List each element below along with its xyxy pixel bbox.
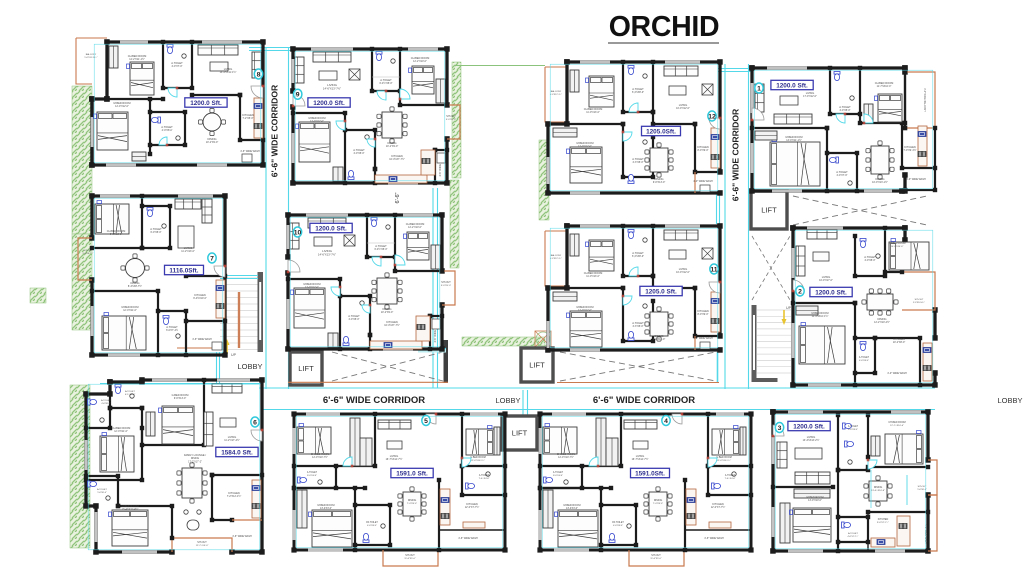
- svg-text:6'-6" WIDE CORRIDOR: 6'-6" WIDE CORRIDOR: [593, 395, 695, 406]
- svg-text:1200.0 Sft.: 1200.0 Sft.: [315, 225, 347, 232]
- svg-text:4'-0"X8'-0": 4'-0"X8'-0": [864, 259, 875, 262]
- svg-text:13'-4½X13'-2½": 13'-4½X13'-2½": [803, 438, 820, 442]
- svg-text:5'-0"X5'-0": 5'-0"X5'-0": [441, 285, 451, 287]
- svg-text:10'-0"X13'-1½": 10'-0"X13'-1½": [872, 180, 888, 184]
- svg-text:DINING: DINING: [874, 486, 883, 489]
- svg-text:A.TOILET: A.TOILET: [848, 532, 858, 535]
- svg-text:11'-6"X5'-0": 11'-6"X5'-0": [650, 558, 661, 560]
- svg-text:10'-0"X10'-0": 10'-0"X10'-0": [891, 246, 904, 248]
- svg-text:10'-0"X12'-0": 10'-0"X12'-0": [676, 107, 690, 110]
- svg-text:LIFT: LIFT: [298, 364, 314, 373]
- svg-text:6'-4½"X8'-0": 6'-4½"X8'-0": [374, 247, 387, 251]
- svg-text:6',4½X8'-0": 6',4½X8'-0": [632, 254, 644, 258]
- svg-text:12'-0"X12'-0": 12'-0"X12'-0": [578, 145, 592, 148]
- svg-text:PA.TOILET: PA.TOILET: [612, 521, 624, 524]
- svg-text:12'-0"X12'-0": 12'-0"X12'-0": [305, 286, 319, 289]
- svg-text:5'-0"X6'-0": 5'-0"X6'-0": [917, 489, 927, 491]
- svg-text:4'-0" WIDE BALCONY: 4'-0" WIDE BALCONY: [923, 88, 926, 112]
- svg-text:12'-0"X11'-0": 12'-0"X11'-0": [123, 309, 137, 312]
- svg-text:1205.0 Sft.: 1205.0 Sft.: [645, 288, 677, 295]
- svg-text:6'-6" WIDE CORRIDOR: 6'-6" WIDE CORRIDOR: [323, 395, 425, 406]
- svg-text:1116.0Sft.: 1116.0Sft.: [169, 267, 198, 274]
- svg-text:8'-0"X9'-0": 8'-0"X9'-0": [697, 149, 708, 152]
- svg-text:12: 12: [708, 114, 716, 121]
- svg-text:7'-0"X9'-1½": 7'-0"X9'-1½": [903, 148, 916, 152]
- svg-text:12'-2"X10'-0": 12'-2"X10'-0": [413, 60, 427, 63]
- svg-text:7'-2"X8'-0": 7'-2"X8'-0": [242, 117, 253, 120]
- svg-text:4'-6" WIDE WASH: 4'-6" WIDE WASH: [192, 338, 212, 341]
- svg-text:CH.BED ROOM: CH.BED ROOM: [888, 242, 905, 245]
- svg-text:12'-2"X10'-0": 12'-2"X10'-0": [408, 226, 422, 229]
- svg-text:11'-0"X13'-0": 11'-0"X13'-0": [586, 275, 600, 278]
- svg-text:9: 9: [296, 92, 300, 99]
- svg-text:8'-0"X4'-6": 8'-0"X4'-6": [553, 475, 563, 477]
- svg-text:DINING: DINING: [654, 499, 663, 502]
- svg-text:LOBBY: LOBBY: [495, 396, 520, 405]
- svg-text:4'-6"X8'-0": 4'-6"X8'-0": [367, 525, 377, 527]
- svg-text:LIVING: LIVING: [327, 83, 338, 87]
- svg-text:8'-4½X8'-7½": 8'-4½X8'-7½": [128, 284, 142, 288]
- svg-text:1591.0Sft.: 1591.0Sft.: [635, 470, 665, 477]
- svg-text:5'-0"X6'-0": 5'-0"X6'-0": [97, 492, 107, 494]
- svg-text:6'-0"X8'-0": 6'-0"X8'-0": [150, 231, 161, 234]
- svg-text:4'-6" WIDE WASH: 4'-6" WIDE WASH: [240, 150, 260, 153]
- svg-text:A.TOILET: A.TOILET: [307, 471, 318, 474]
- svg-text:8'-0"X4'-6": 8'-0"X4'-6": [307, 475, 317, 477]
- svg-text:PA.TOILET: PA.TOILET: [366, 521, 378, 524]
- svg-text:4'-3"X8'-0": 4'-3"X8'-0": [632, 161, 643, 164]
- svg-text:13'-0'X3'-0": 13'-0'X3'-0": [566, 507, 578, 510]
- svg-text:12'-0"X12'-0": 12'-0"X12'-0": [578, 309, 592, 312]
- svg-text:10'-2"X9'-0": 10'-2"X9'-0": [381, 311, 394, 314]
- svg-text:9'-4½X10'-0": 9'-4½X10'-0": [193, 296, 207, 300]
- svg-text:11'-0"X13'-0": 11'-0"X13'-0": [586, 111, 600, 114]
- svg-text:4'-0" WIDE WASH: 4'-0" WIDE WASH: [906, 178, 926, 181]
- svg-text:1: 1: [757, 86, 761, 93]
- svg-text:SIT-OUT: SIT-OUT: [915, 299, 924, 301]
- svg-text:A.TOILET: A.TOILET: [553, 471, 564, 474]
- svg-text:10: 10: [294, 230, 302, 237]
- svg-text:4'-0" WIDE WASH: 4'-0" WIDE WASH: [693, 337, 713, 340]
- svg-text:4'-0"X8'-0': 4'-0"X8'-0': [162, 129, 173, 132]
- svg-text:4'-0" WIDE WASH: 4'-0" WIDE WASH: [924, 524, 927, 544]
- svg-text:12'-0"X10'-7½": 12'-0"X10'-7½": [312, 455, 328, 459]
- svg-text:1200.0 Sft.: 1200.0 Sft.: [793, 423, 825, 430]
- svg-text:LIFT: LIFT: [529, 361, 545, 370]
- svg-text:12'-0"X12'-0": 12'-0"X12'-0": [115, 105, 129, 108]
- svg-text:9'-0"X13'-0": 9'-0"X13'-0": [653, 181, 666, 184]
- svg-text:4'-0"X7'-6": 4'-0"X7'-6": [836, 174, 847, 177]
- svg-text:4'-6"X8'-0": 4'-6"X8'-0": [101, 403, 111, 405]
- svg-text:BALCONY: BALCONY: [551, 90, 562, 93]
- svg-text:11'-4½X10'-1½": 11'-4½X10'-1½": [812, 314, 829, 318]
- svg-text:6'-6" WIDE CORRIDOR: 6'-6" WIDE CORRIDOR: [270, 84, 280, 177]
- svg-text:A.TOILET: A.TOILET: [859, 356, 870, 359]
- svg-text:4'-0" WIDE WASH: 4'-0" WIDE WASH: [693, 180, 713, 183]
- svg-text:LIFT: LIFT: [512, 429, 528, 438]
- svg-text:3: 3: [778, 425, 782, 432]
- svg-text:10'-2"X9'-0": 10'-2"X9'-0": [386, 145, 399, 148]
- svg-text:12'-0"X12'-0": 12'-0"X12'-0": [310, 120, 324, 123]
- svg-text:5'-0"X5'-0": 5'-0"X5'-0": [446, 119, 456, 121]
- svg-text:12'-0"X7'-7½": 12'-0"X7'-7½": [465, 505, 480, 509]
- svg-text:13'-0"X11'-1½": 13'-0"X11'-1½": [786, 138, 802, 142]
- svg-text:A.TOILET: A.TOILET: [101, 399, 111, 402]
- svg-text:KITCHEN: KITCHEN: [878, 518, 889, 521]
- svg-text:1200.0 Sft.: 1200.0 Sft.: [313, 100, 345, 107]
- svg-text:6'-0"X8'-0": 6'-0"X8'-0": [848, 429, 858, 431]
- svg-text:12'-0"X11'-0": 12'-0"X11'-0": [114, 430, 128, 433]
- svg-text:7'-4"X9'-4": 7'-4"X9'-4": [653, 503, 663, 505]
- svg-text:6',4½X8'-0": 6',4½X8'-0": [632, 90, 644, 94]
- svg-text:A.TOILET: A.TOILET: [125, 390, 135, 393]
- svg-text:1200.0 Sft.: 1200.0 Sft.: [815, 289, 847, 296]
- svg-text:4'-0" WIDE WASH: 4'-0" WIDE WASH: [887, 372, 907, 375]
- svg-text:1205.0Sft.: 1205.0Sft.: [646, 128, 676, 135]
- svg-text:4'-6"X8'-0": 4'-6"X8'-0": [613, 525, 623, 527]
- svg-text:LIVING: LIVING: [322, 249, 333, 253]
- svg-text:LOBBY: LOBBY: [997, 396, 1022, 405]
- svg-text:4'-3"X8'-0": 4'-3"X8'-0": [632, 325, 643, 328]
- svg-text:BALCONY: BALCONY: [86, 53, 97, 56]
- svg-text:2: 2: [798, 289, 802, 296]
- svg-text:10'-2"X8'-0": 10'-2"X8'-0": [893, 341, 906, 344]
- svg-text:4'-6"X8'-0": 4'-6"X8'-0": [859, 360, 869, 362]
- svg-text:9'-6"X13'-0": 9'-6"X13'-0": [174, 397, 187, 400]
- svg-text:SIT-OUT: SIT-OUT: [197, 541, 207, 544]
- svg-text:1200.0 Sft.: 1200.0 Sft.: [776, 82, 808, 89]
- svg-text:4'-6" WIDE WASH: 4'-6" WIDE WASH: [458, 537, 478, 540]
- svg-text:10'-4½X7'-7½": 10'-4½X7'-7½": [389, 157, 405, 161]
- svg-text:14'-6"X13'-7½": 14'-6"X13'-7½": [318, 253, 336, 257]
- svg-text:G.BED ROOM: G.BED ROOM: [470, 456, 486, 459]
- svg-text:13'-0'X3'-0": 13'-0'X3'-0": [320, 507, 332, 510]
- svg-text:A.TOILET: A.TOILET: [97, 488, 107, 491]
- svg-text:16'-7½X14'-7½": 16'-7½X14'-7½": [632, 457, 649, 461]
- svg-text:8'-0"X9'-0": 8'-0"X9'-0": [697, 313, 708, 316]
- svg-text:10'-2"X9'-0": 10'-2"X9'-0": [206, 141, 219, 144]
- svg-text:14'-4½X11'-1½": 14'-4½X11'-1½": [220, 70, 237, 74]
- svg-text:12'-0"X10'-7½": 12'-0"X10'-7½": [558, 455, 574, 459]
- svg-text:7'-2"X12'-1½": 7'-2"X12'-1½": [227, 494, 242, 498]
- svg-text:11: 11: [710, 267, 717, 274]
- svg-text:16'-7½X14'-7½": 16'-7½X14'-7½": [386, 457, 403, 461]
- svg-text:LOBBY: LOBBY: [237, 362, 262, 371]
- svg-text:G.BED ROOM: G.BED ROOM: [716, 456, 732, 459]
- svg-text:4'-0"X7'-0": 4'-0"X7'-0": [171, 65, 182, 68]
- svg-text:6'-0'X7'-4½: 6'-0'X7'-4½: [166, 328, 178, 332]
- svg-text:13'-4½X11'-4½": 13'-4½X11'-4½": [122, 507, 139, 511]
- svg-text:12'-0"X7'-7½": 12'-0"X7'-7½": [711, 505, 726, 509]
- svg-text:7: 7: [210, 256, 214, 263]
- svg-text:BALCONY: BALCONY: [551, 254, 562, 257]
- svg-text:6'-6": 6'-6": [395, 192, 401, 203]
- svg-text:10'-4½X7'-7½": 10'-4½X7'-7½": [384, 323, 400, 327]
- svg-text:7'-4"X9'-4": 7'-4"X9'-4": [407, 503, 417, 505]
- svg-text:13'-0"X10'-0": 13'-0"X10'-0": [808, 499, 822, 502]
- svg-text:4'-6" WIDE WASH: 4'-6" WIDE WASH: [704, 537, 724, 540]
- svg-text:4: 4: [664, 418, 668, 425]
- svg-text:1584.0 Sft.: 1584.0 Sft.: [221, 449, 253, 456]
- svg-text:4'-6" WIDE WASH: 4'-6" WIDE WASH: [232, 535, 252, 538]
- svg-text:4'-0"X8'-0": 4'-0"X8'-0": [348, 318, 359, 321]
- svg-text:11'-2"X13'-0": 11'-2"X13'-0": [181, 250, 195, 253]
- svg-text:UP: UP: [786, 306, 792, 310]
- svg-text:14'-6"X13'-7½": 14'-6"X13'-7½": [323, 87, 341, 91]
- svg-text:SIT-OUT: SIT-OUT: [84, 250, 93, 252]
- svg-text:A.TOILET: A.TOILET: [479, 474, 490, 477]
- svg-text:12'-2"X10'-4½": 12'-2"X10'-4½": [874, 320, 890, 324]
- svg-text:A.TOILET: A.TOILET: [848, 425, 859, 428]
- svg-text:SIT-OUT: SIT-OUT: [405, 554, 415, 557]
- svg-text:1200.0 Sft.: 1200.0 Sft.: [190, 100, 222, 107]
- svg-text:6'-6" WIDE CORRIDOR: 6'-6" WIDE CORRIDOR: [731, 108, 741, 201]
- svg-text:ORCHID: ORCHID: [609, 11, 720, 43]
- svg-text:11'-6"X5'-0": 11'-6"X5'-0": [404, 558, 415, 560]
- svg-text:11'-7½X10'-0": 11'-7½X10'-0": [877, 84, 892, 88]
- svg-text:17'-0"X12'-0": 17'-0"X12'-0": [803, 95, 817, 98]
- svg-text:CH.BED ROOM: CH.BED ROOM: [888, 421, 905, 424]
- svg-text:9'-6"X10'-0": 9'-6"X10'-0": [110, 233, 123, 236]
- svg-text:9'-0"X13'-0": 9'-0"X13'-0": [653, 338, 666, 341]
- svg-text:SIT-OUT: SIT-OUT: [651, 554, 661, 557]
- svg-text:11'-2"X17'-4½": 11'-2"X17'-4½": [224, 438, 240, 442]
- svg-text:6'-4½"X8'-0": 6'-4½"X8'-0": [379, 81, 392, 85]
- svg-text:DINING: DINING: [408, 499, 417, 502]
- svg-text:4'-0"X8'-0": 4'-0"X8'-0": [839, 109, 850, 112]
- svg-text:8: 8: [257, 72, 261, 79]
- svg-text:UP: UP: [231, 353, 237, 357]
- svg-text:10'-0"X12'-0": 10'-0"X12'-0": [676, 271, 690, 274]
- svg-text:6: 6: [253, 420, 257, 427]
- svg-text:4'-0"X8'-0": 4'-0"X8'-0": [353, 152, 364, 155]
- svg-text:10'-0"X17'-0": 10'-0"X17'-0": [819, 279, 833, 282]
- svg-text:LIFT: LIFT: [761, 206, 777, 215]
- svg-text:A.TOILET: A.TOILET: [725, 474, 736, 477]
- svg-text:SIT-OUT: SIT-OUT: [441, 281, 451, 284]
- svg-text:SIT-OUT: SIT-OUT: [446, 115, 456, 118]
- svg-text:1591.0 Sft.: 1591.0 Sft.: [396, 470, 428, 477]
- svg-text:12'-2"X11'-1½": 12'-2"X11'-1½": [129, 57, 145, 61]
- svg-text:5: 5: [424, 418, 428, 425]
